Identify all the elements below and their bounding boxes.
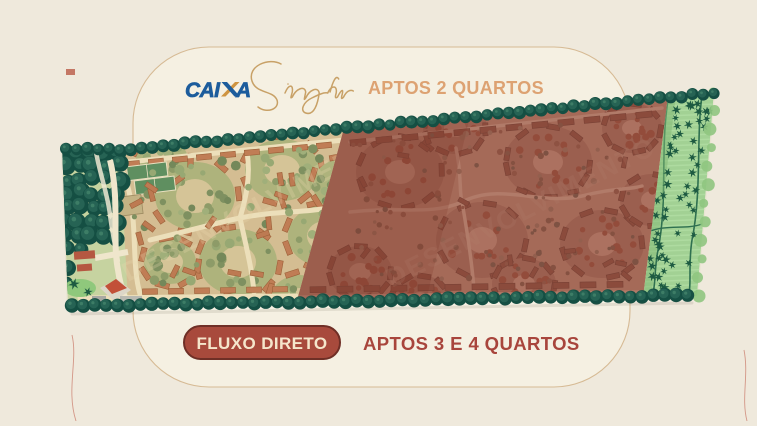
- svg-text:APTOS 3 E 4 QUARTOS: APTOS 3 E 4 QUARTOS: [363, 333, 580, 354]
- svg-text:CAI: CAI: [185, 79, 221, 102]
- svg-text:APTOS 2 QUARTOS: APTOS 2 QUARTOS: [368, 78, 544, 98]
- svg-text:FLUXO DIRETO: FLUXO DIRETO: [196, 334, 327, 353]
